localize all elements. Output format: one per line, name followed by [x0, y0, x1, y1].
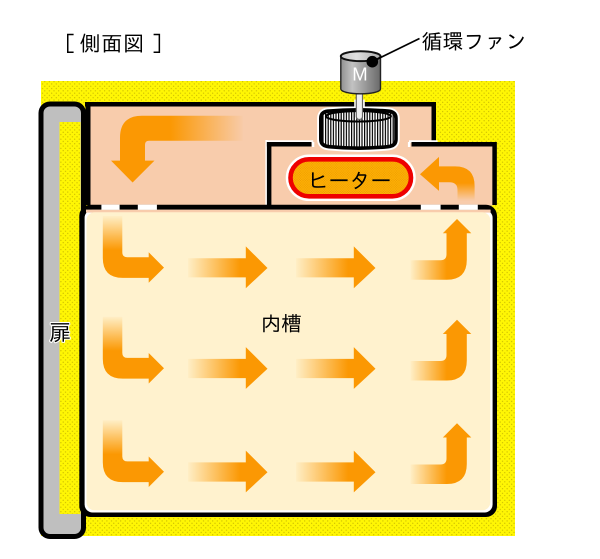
svg-text:M: M	[352, 63, 367, 84]
